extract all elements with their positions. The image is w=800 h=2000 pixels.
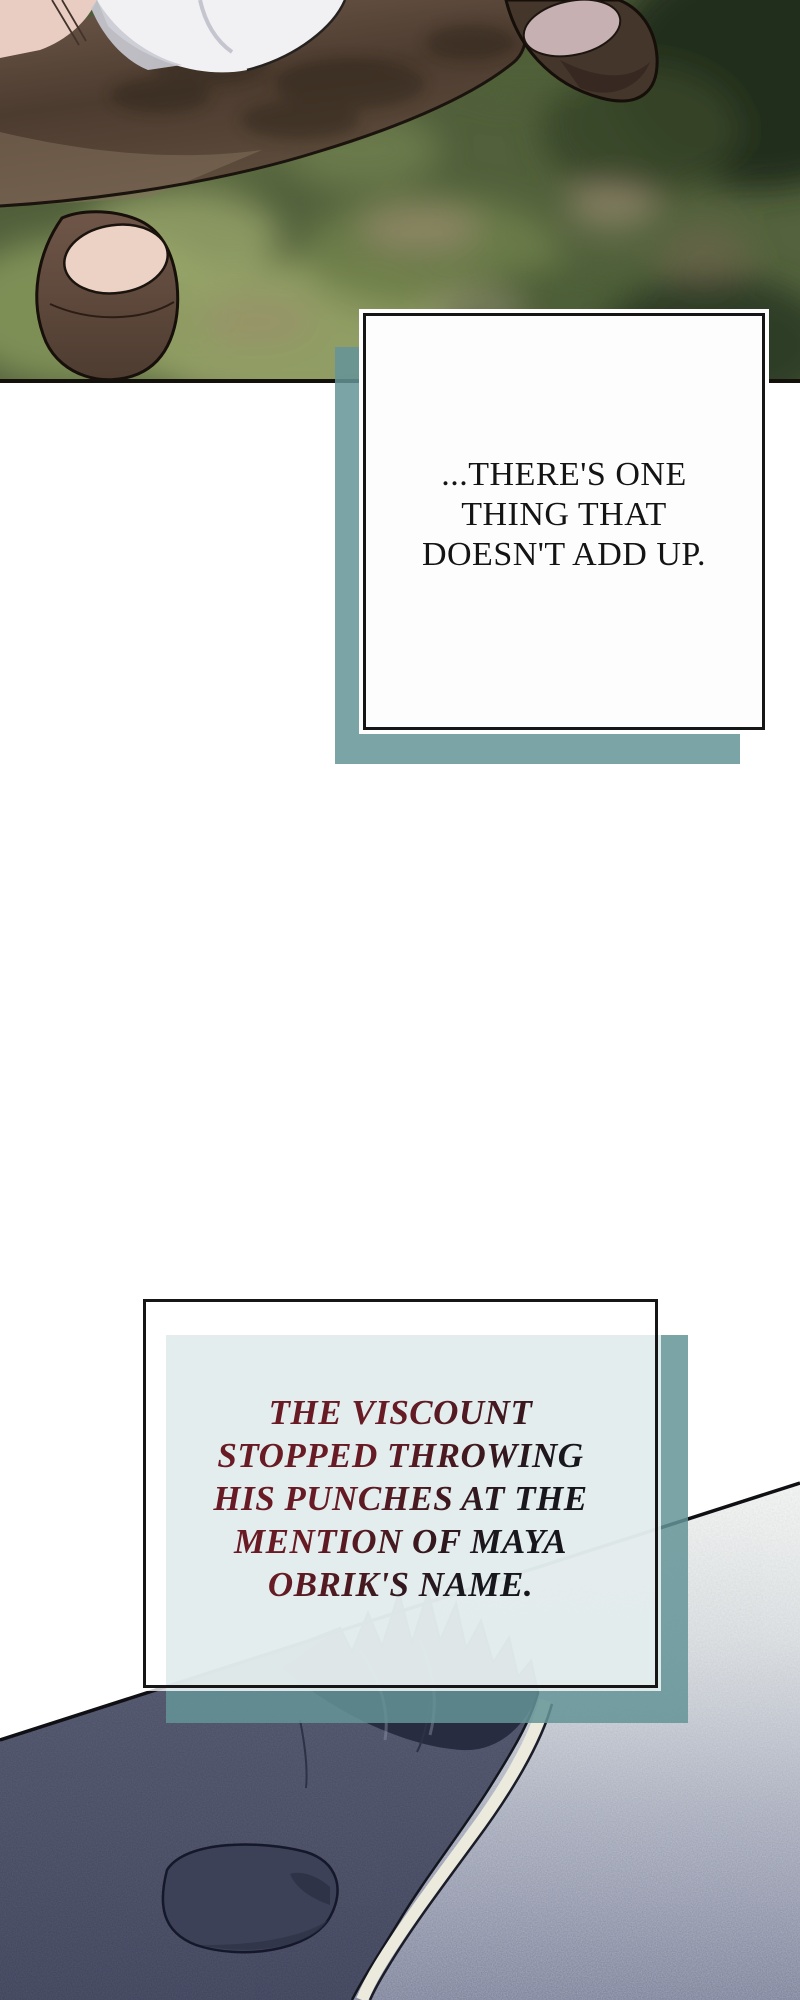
clothing-patch: [163, 1845, 338, 1953]
caption-1-text: ...THERE'S ONE THING THAT DOESN'T ADD UP…: [422, 455, 706, 575]
caption-box-1: ...THERE'S ONE THING THAT DOESN'T ADD UP…: [363, 313, 765, 730]
left-boot: [37, 212, 178, 380]
caption-2-text: THE VISCOUNT STOPPED THROWING HIS PUNCHE…: [213, 1391, 587, 1606]
caption-box-2: THE VISCOUNT STOPPED THROWING HIS PUNCHE…: [143, 1299, 658, 1688]
comic-page: ...THERE'S ONE THING THAT DOESN'T ADD UP…: [0, 0, 800, 2000]
